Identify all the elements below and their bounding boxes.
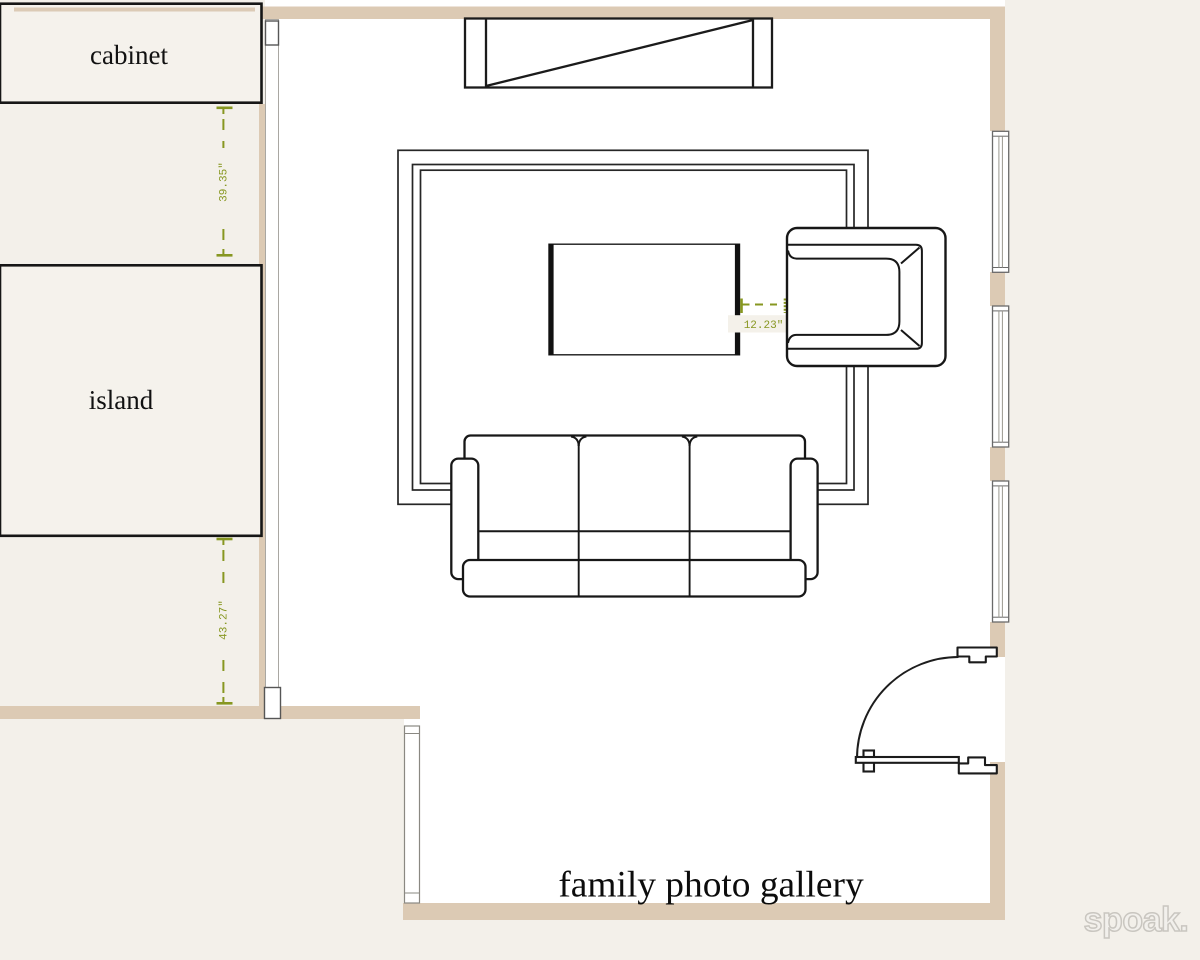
svg-text:family photo gallery: family photo gallery bbox=[558, 865, 864, 906]
svg-text:spoak.: spoak. bbox=[1084, 901, 1189, 939]
svg-text:island: island bbox=[89, 385, 154, 415]
svg-text:12.23": 12.23" bbox=[744, 320, 784, 332]
svg-text:43.27": 43.27" bbox=[219, 600, 231, 640]
svg-text:39.35": 39.35" bbox=[219, 162, 231, 202]
svg-text:cabinet: cabinet bbox=[90, 40, 168, 70]
